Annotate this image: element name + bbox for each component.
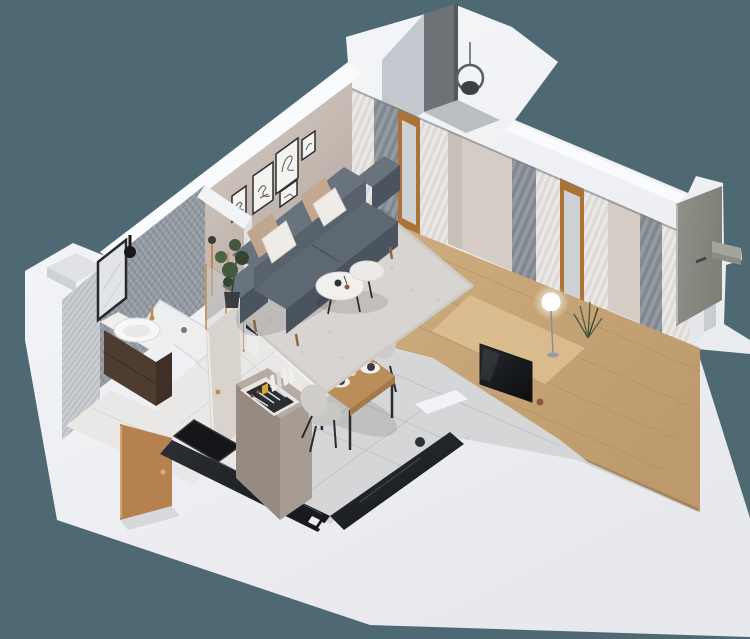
plant-leaves — [215, 251, 227, 263]
rug-speckle — [411, 289, 414, 292]
balcony-mesh-screen-edge — [454, 3, 458, 102]
isometric-floorplan-svg — [0, 0, 750, 639]
shower-head — [208, 236, 216, 244]
rug-speckle — [391, 267, 394, 270]
knife-handle — [256, 390, 259, 393]
plate — [367, 363, 375, 371]
rug-speckle — [329, 331, 332, 334]
shower-drain — [181, 327, 187, 333]
plant-leaves — [223, 277, 233, 287]
floor-lamp-base — [547, 353, 559, 358]
coffee-table-top-small — [350, 261, 384, 281]
window-glass-2 — [564, 190, 580, 300]
window-glass-1 — [402, 120, 416, 225]
floor-lamp-bulb — [542, 293, 561, 312]
decor-ball — [537, 399, 544, 406]
plant-leaves — [229, 239, 241, 251]
basin-faucet-spout — [150, 316, 155, 321]
entry — [120, 424, 180, 530]
floorplan-render-stage — [0, 0, 750, 639]
plant-leaves — [235, 251, 249, 265]
pier-wall-2 — [608, 199, 640, 330]
curtain-sheer-2 — [420, 118, 448, 251]
table-cup — [345, 285, 350, 290]
kettle — [415, 437, 425, 447]
curtain-sheer-4 — [584, 189, 608, 317]
plant-pot — [224, 292, 240, 308]
bathroom-door-handle — [216, 390, 221, 395]
rug-speckle — [341, 357, 344, 360]
entry-door-handle — [161, 470, 166, 475]
curtain-sheer-3 — [536, 168, 560, 297]
plant-leaves — [222, 262, 238, 278]
hanging-chair-seat — [461, 81, 479, 95]
wall-sconce-lamp — [124, 246, 136, 258]
knife-handle — [250, 394, 253, 397]
rug-speckle — [301, 351, 304, 354]
pier-wall-1-shade — [448, 130, 462, 257]
rug-speckle — [437, 299, 440, 302]
curtain-gray-3 — [640, 213, 662, 339]
balcony-mesh-screen — [424, 3, 458, 112]
table-bowl — [335, 280, 342, 287]
basin-inner — [123, 325, 151, 338]
curtain-gray-2 — [512, 158, 536, 287]
